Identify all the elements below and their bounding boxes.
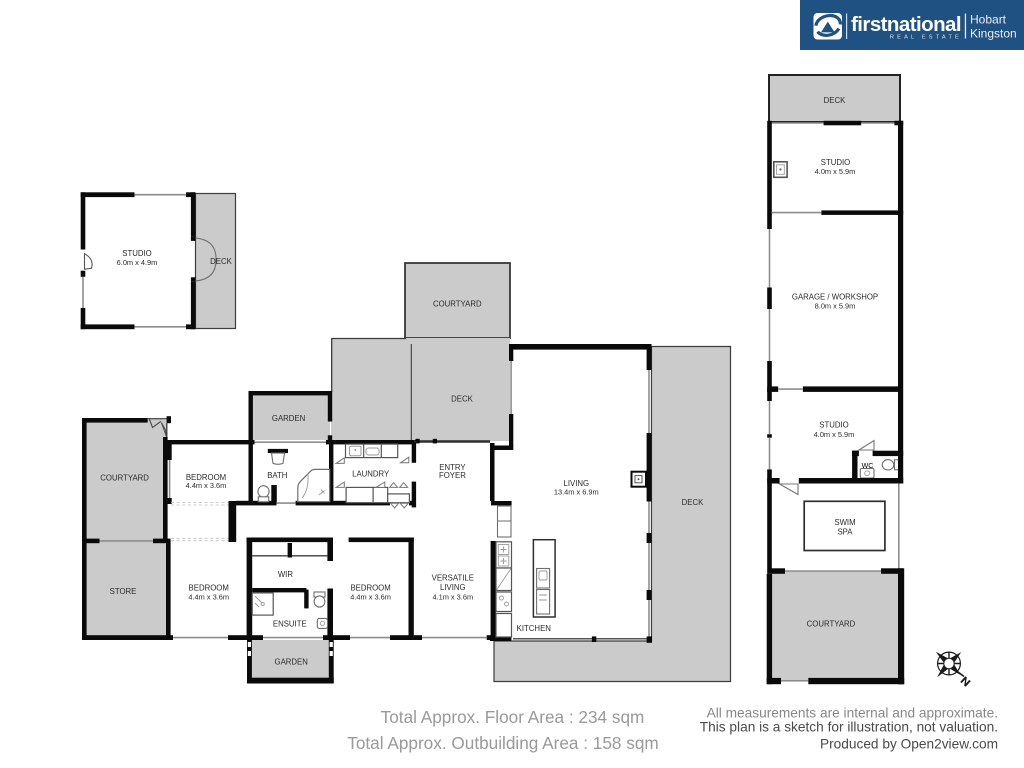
svg-text:All measurements are internal: All measurements are internal and approx… <box>707 706 998 721</box>
svg-text:13.4m x 6.9m: 13.4m x 6.9m <box>554 488 599 497</box>
svg-text:ENSUITE: ENSUITE <box>273 620 307 629</box>
svg-text:SPA: SPA <box>837 528 853 537</box>
svg-text:DECK: DECK <box>824 96 846 105</box>
svg-text:DECK: DECK <box>210 257 232 266</box>
svg-text:4.0m x 5.9m: 4.0m x 5.9m <box>814 430 855 439</box>
svg-text:VERSATILE: VERSATILE <box>432 574 474 583</box>
svg-text:LIVING: LIVING <box>440 583 466 592</box>
svg-text:firstnational: firstnational <box>851 13 961 36</box>
svg-text:Produced by Open2view.com: Produced by Open2view.com <box>820 737 998 752</box>
svg-text:4.1m x 3.6m: 4.1m x 3.6m <box>432 593 473 602</box>
svg-text:8.0m x 5.9m: 8.0m x 5.9m <box>815 302 856 311</box>
svg-text:Total Approx. Outbuilding Area: Total Approx. Outbuilding Area : 158 sqm <box>347 733 658 753</box>
svg-text:KITCHEN: KITCHEN <box>517 624 551 633</box>
svg-text:Kingston: Kingston <box>970 27 1017 41</box>
svg-text:BEDROOM: BEDROOM <box>350 584 390 593</box>
svg-text:COURTYARD: COURTYARD <box>433 300 482 309</box>
svg-text:BEDROOM: BEDROOM <box>189 584 229 593</box>
svg-text:4.0m x 5.9m: 4.0m x 5.9m <box>815 167 856 176</box>
svg-text:DECK: DECK <box>682 498 704 507</box>
svg-text:FOYER: FOYER <box>439 471 466 480</box>
svg-text:6.0m x 4.9m: 6.0m x 4.9m <box>117 258 158 267</box>
svg-text:GARAGE / WORKSHOP: GARAGE / WORKSHOP <box>792 293 878 302</box>
svg-text:BATH: BATH <box>267 471 287 480</box>
svg-text:COURTYARD: COURTYARD <box>807 620 856 629</box>
svg-text:COURTYARD: COURTYARD <box>100 474 149 483</box>
svg-text:This plan is a sketch for illu: This plan is a sketch for illustration, … <box>700 720 998 735</box>
svg-text:DECK: DECK <box>451 395 473 404</box>
svg-text:STUDIO: STUDIO <box>819 421 848 430</box>
svg-text:4.4m x 3.6m: 4.4m x 3.6m <box>188 593 229 602</box>
svg-text:STORE: STORE <box>110 587 137 596</box>
svg-text:Hobart: Hobart <box>970 13 1007 27</box>
svg-text:SWIM: SWIM <box>834 518 855 527</box>
svg-text:4.4m x 3.6m: 4.4m x 3.6m <box>350 593 391 602</box>
svg-text:STUDIO: STUDIO <box>821 158 850 167</box>
svg-text:GARDEN: GARDEN <box>275 658 308 667</box>
svg-text:WIR: WIR <box>278 570 294 579</box>
svg-text:GARDEN: GARDEN <box>272 414 305 423</box>
svg-text:LAUNDRY: LAUNDRY <box>352 470 390 479</box>
svg-text:LIVING: LIVING <box>564 479 590 488</box>
svg-text:STUDIO: STUDIO <box>122 249 151 258</box>
svg-text:4.4m x 3.6m: 4.4m x 3.6m <box>186 481 227 490</box>
svg-text:Total Approx. Floor Area : 234: Total Approx. Floor Area : 234 sqm <box>381 707 645 727</box>
svg-text:REAL ESTATE: REAL ESTATE <box>890 35 962 41</box>
